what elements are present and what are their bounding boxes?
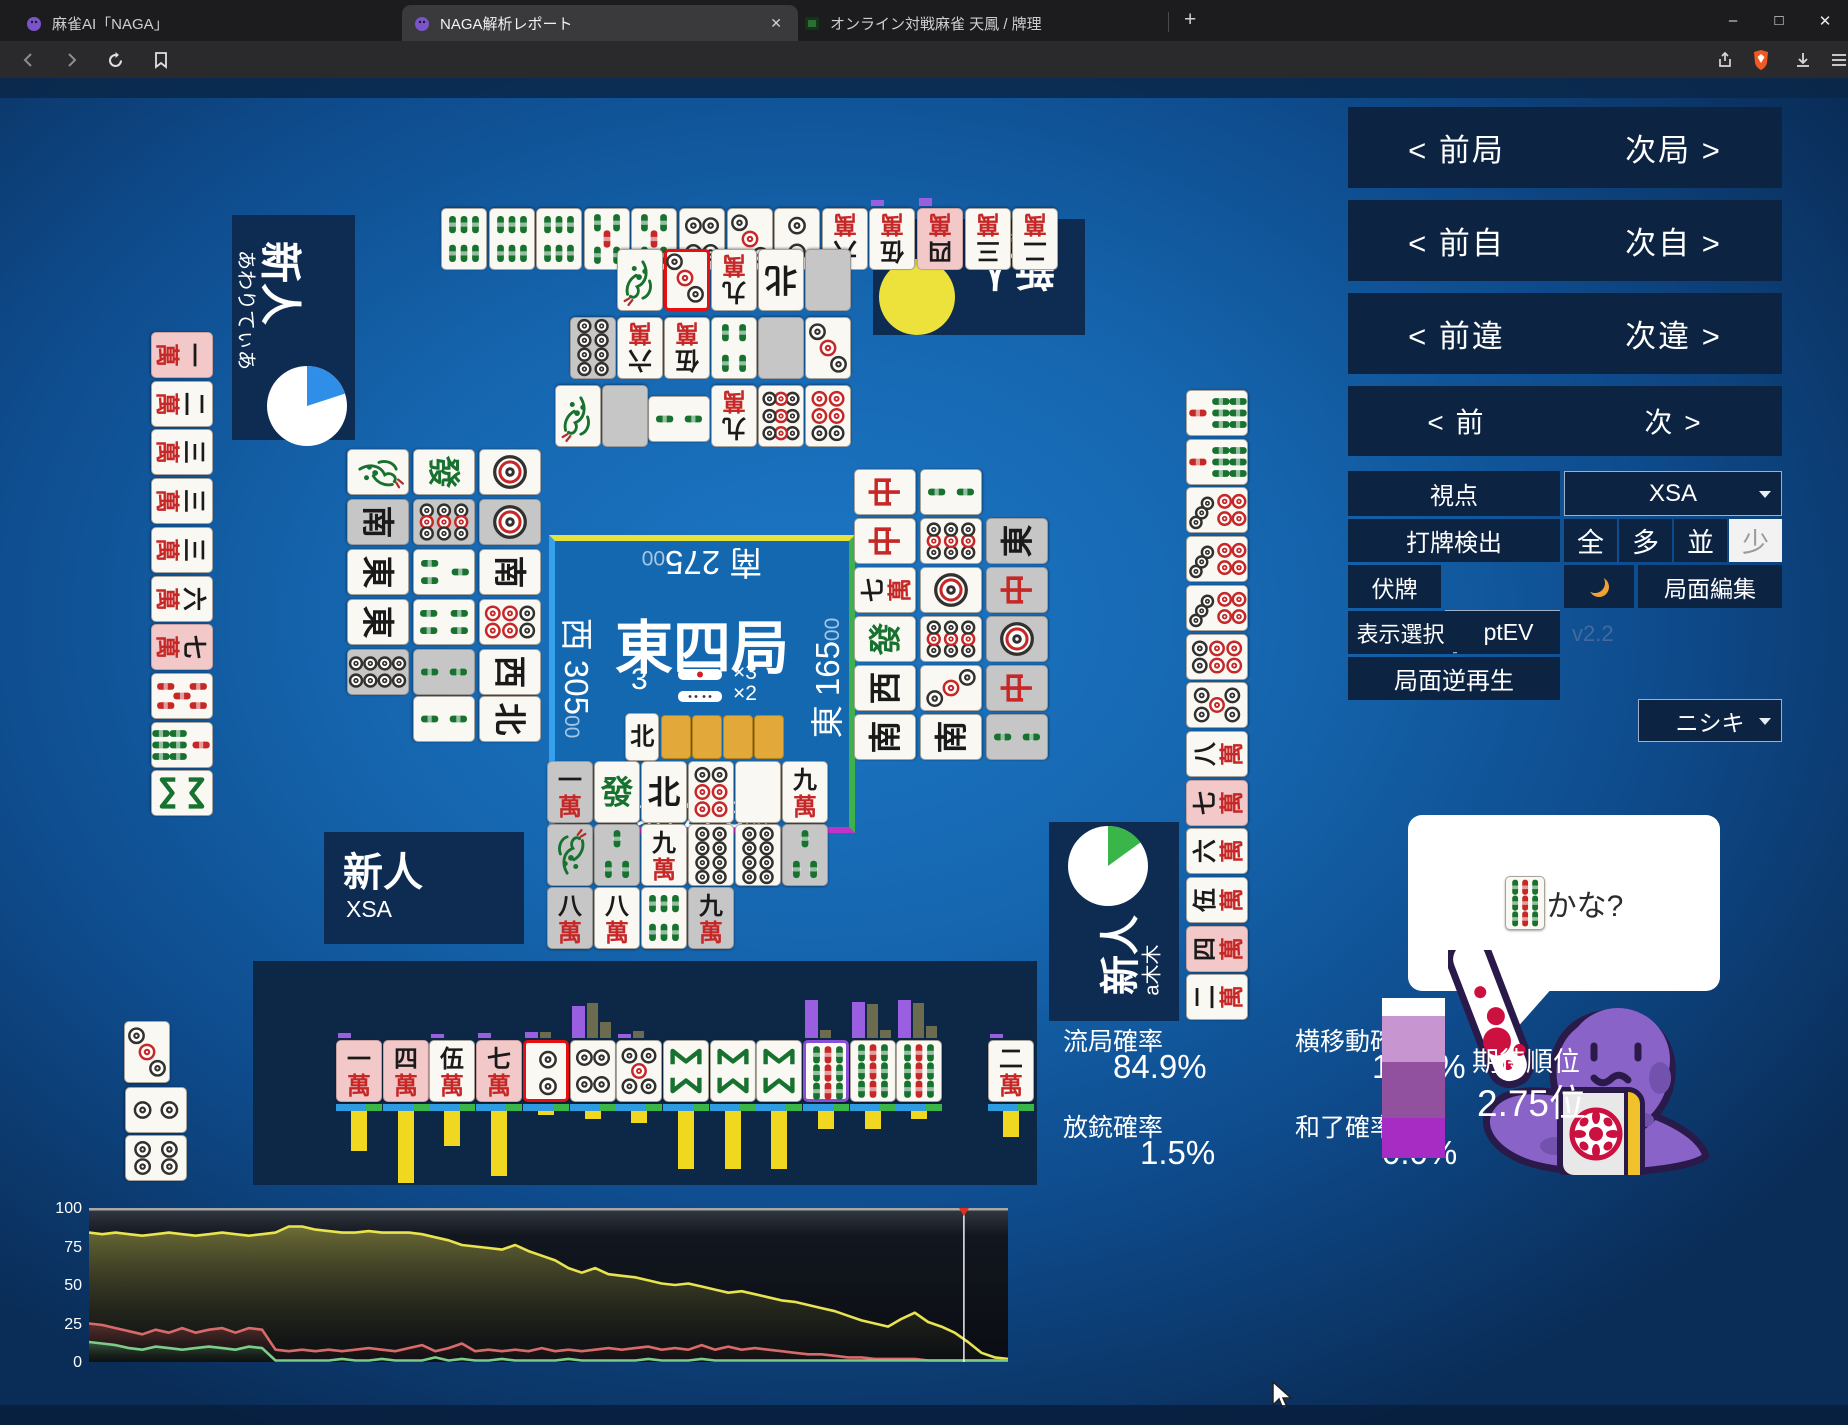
naga-rate-bar: [990, 1034, 1003, 1038]
tile-3m: 三 萬: [151, 429, 213, 475]
other-ai-rate-bar: [926, 1026, 937, 1038]
tile-8s: [151, 770, 213, 816]
agree-strip: [693, 1104, 709, 1111]
tile-9m: 九 萬: [711, 385, 757, 447]
tile-1s: [617, 249, 663, 311]
tile-1s: [347, 449, 409, 495]
tile-2m: 二 萬: [1186, 974, 1248, 1020]
tile-8s: [710, 1040, 756, 1102]
svg-text:萬: 萬: [928, 210, 952, 237]
svg-text:萬: 萬: [1023, 210, 1047, 237]
tile-C: 中: [854, 518, 916, 564]
tile-9s: [850, 1040, 896, 1102]
tile-3s: [594, 824, 640, 886]
tab-title: オンライン対戦麻雀 天鳳 / 牌理: [830, 13, 1042, 34]
naga-rate-bar: [431, 1034, 444, 1038]
svg-text:二: 二: [1023, 237, 1047, 264]
mouse-cursor: [1271, 1381, 1293, 1411]
tile-6s: [441, 208, 487, 270]
svg-text:六: 六: [627, 345, 651, 372]
agree-strip: [336, 1104, 366, 1111]
new-tab-button[interactable]: +: [1184, 8, 1196, 32]
tile-6m: 六 萬: [617, 317, 663, 379]
tile-9s: [1505, 876, 1545, 930]
agree-strip: [366, 1104, 382, 1111]
tile-7m: 七 萬: [1186, 780, 1248, 826]
tile-2s: [413, 696, 475, 742]
svg-text:七: 七: [1192, 791, 1219, 815]
discard-rate-bar: [919, 198, 932, 206]
reload-icon[interactable]: [102, 47, 128, 73]
tile-3s: [782, 824, 828, 886]
tile-H: [735, 761, 781, 823]
other-ai-rate-bar: [587, 1003, 598, 1038]
tile-H: [758, 317, 804, 379]
agree-strip: [896, 1104, 926, 1111]
svg-text:九: 九: [721, 277, 746, 304]
tile-7p: [1186, 487, 1248, 533]
svg-text:萬: 萬: [440, 1073, 464, 1100]
svg-text:伍: 伍: [1191, 888, 1219, 912]
window-minimize-button[interactable]: –: [1710, 0, 1756, 41]
svg-text:八: 八: [1192, 741, 1219, 766]
stat-label-agari: 和了確率: [1295, 1108, 1395, 1144]
y-tick-50: 50: [42, 1277, 82, 1295]
svg-text:二: 二: [999, 1046, 1023, 1073]
svg-text:西: 西: [492, 655, 528, 688]
agree-strip: [616, 1104, 646, 1111]
other-ai-rate-bar: [540, 1032, 551, 1038]
actual-rate-bar: [491, 1111, 507, 1176]
back-icon[interactable]: [16, 47, 42, 73]
tab-tenhou[interactable]: オンライン対戦麻雀 天鳳 / 牌理: [792, 5, 1188, 41]
discard-rate-bar: [871, 200, 884, 206]
svg-text:三: 三: [180, 489, 207, 513]
naga-favicon-icon: [26, 15, 43, 32]
svg-text:三: 三: [976, 237, 1000, 264]
agree-strip: [600, 1104, 616, 1111]
tile-8m: 八 萬: [1186, 731, 1248, 777]
svg-text:北: 北: [764, 261, 797, 297]
svg-text:發: 發: [599, 774, 633, 810]
svg-text:萬: 萬: [153, 635, 180, 659]
tile-5m: 伍 萬: [869, 208, 915, 270]
tile-8p: [347, 649, 409, 695]
tile-5sr: [151, 673, 213, 719]
tile-6s: [536, 208, 582, 270]
svg-text:萬: 萬: [833, 210, 857, 237]
svg-text:伍: 伍: [674, 345, 698, 373]
naga-rate-bar: [525, 1032, 538, 1038]
tile-5p: [616, 1040, 662, 1102]
tile-5m: 伍 萬: [1186, 877, 1248, 923]
other-ai-rate-bar: [820, 1030, 831, 1038]
svg-text:七: 七: [487, 1046, 511, 1073]
agree-strip: [646, 1104, 662, 1111]
tile-9m: 九 萬: [782, 761, 828, 823]
svg-text:萬: 萬: [1219, 791, 1246, 815]
svg-text:萬: 萬: [558, 919, 582, 946]
svg-text:三: 三: [180, 538, 207, 562]
brave-shield-icon[interactable]: [1748, 47, 1774, 73]
tile-2s: [648, 396, 710, 442]
naga-rate-bar: [338, 1033, 351, 1038]
svg-text:六: 六: [1192, 839, 1219, 863]
tile-2p: [523, 1040, 569, 1102]
tab-title: NAGA解析レポート: [440, 13, 573, 34]
tile-9m: 九 萬: [688, 887, 734, 949]
agree-strip: [833, 1104, 849, 1111]
tab-naga-report[interactable]: NAGA解析レポート ✕: [402, 5, 798, 41]
y-tick-25: 25: [42, 1316, 82, 1334]
svg-text:八: 八: [558, 893, 583, 920]
svg-text:七: 七: [180, 635, 207, 659]
agree-strip: [988, 1104, 1018, 1111]
agree-strip: [523, 1104, 553, 1111]
tile-E: 東: [986, 518, 1048, 564]
tile-3s: [413, 549, 475, 595]
rank-probability-bar: [1382, 998, 1445, 1158]
agree-strip: [756, 1104, 786, 1111]
agree-strip: [926, 1104, 942, 1111]
tile-6m: 六 萬: [151, 576, 213, 622]
svg-text:萬: 萬: [1219, 937, 1246, 961]
tab-close-icon[interactable]: ✕: [766, 15, 786, 32]
other-ai-rate-bar: [633, 1031, 644, 1038]
tile-9p: [920, 518, 982, 564]
actual-rate-bar: [865, 1111, 881, 1129]
tile-6m: 六 萬: [1186, 828, 1248, 874]
tile-1m: 一 萬: [336, 1040, 382, 1102]
tile-7s: [151, 722, 213, 768]
svg-text:九: 九: [792, 767, 817, 794]
svg-text:東: 東: [360, 605, 396, 638]
agree-strip: [1018, 1104, 1034, 1111]
tile-7m: 七 萬: [854, 567, 916, 613]
actual-rate-bar: [725, 1111, 741, 1169]
actual-rate-bar: [351, 1111, 367, 1151]
other-ai-rate-bar: [913, 1003, 924, 1038]
tile-9m: 九 萬: [711, 249, 757, 311]
tile-2s: [920, 469, 982, 515]
tile-N: 北: [479, 696, 541, 742]
actual-rate-bar: [398, 1111, 414, 1183]
tile-N: 北: [758, 249, 804, 311]
svg-text:萬: 萬: [1219, 839, 1246, 863]
agree-strip: [740, 1104, 756, 1111]
other-ai-rate-bar: [880, 1030, 891, 1038]
actual-rate-bar: [1003, 1111, 1019, 1137]
tile-1p: [479, 499, 541, 545]
tile-7p: [1186, 585, 1248, 631]
tile-3m: 三 萬: [151, 478, 213, 524]
svg-text:萬: 萬: [487, 1073, 511, 1100]
svg-text:萬: 萬: [628, 319, 652, 346]
tile-3p: [805, 317, 851, 379]
agree-strip: [710, 1104, 740, 1111]
svg-text:東: 東: [360, 555, 396, 588]
naga-rate-bar: [898, 1000, 911, 1038]
svg-text:一: 一: [558, 767, 582, 794]
svg-text:四: 四: [394, 1046, 418, 1073]
naga-analysis-window: 麻雀AI「NAGA」 NAGA解析レポート ✕ オンライン対戦麻雀 天鳳 / 牌…: [0, 0, 1848, 1425]
tile-C: 中: [986, 567, 1048, 613]
tile-E: 東: [347, 549, 409, 595]
naga-rate-bar: [572, 1006, 585, 1038]
tile-7s: [1186, 390, 1248, 436]
agree-strip: [663, 1104, 693, 1111]
tile-S: 南: [347, 499, 409, 545]
other-ai-rate-bar: [867, 1004, 878, 1038]
naga-rate-bar: [478, 1033, 491, 1038]
tile-4m: 四 萬: [1186, 926, 1248, 972]
tile-5p: [1186, 682, 1248, 728]
download-icon[interactable]: [1790, 47, 1816, 73]
svg-text:萬: 萬: [558, 793, 582, 820]
tile-6p: [1186, 634, 1248, 680]
tile-9m: 九 萬: [641, 824, 687, 886]
actual-rate-bar: [631, 1111, 647, 1123]
tile-1p: [920, 567, 982, 613]
svg-text:二: 二: [180, 392, 207, 416]
tile-6s: [489, 208, 535, 270]
svg-text:萬: 萬: [722, 387, 746, 414]
tile-F: 發: [413, 449, 475, 495]
stat-value-houjuu: 1.5%: [1140, 1134, 1215, 1172]
svg-text:萬: 萬: [1219, 742, 1246, 766]
tile-S: 南: [854, 714, 916, 760]
analysis-board: < 前局 次局 > < 前自 次自 > < 前違 次違 > < 前 次 > 視点…: [0, 78, 1848, 1425]
tile-1s: [555, 385, 601, 447]
agree-strip: [476, 1104, 506, 1111]
svg-text:一: 一: [180, 343, 207, 367]
tile-9p: [920, 616, 982, 662]
share-icon[interactable]: [1712, 47, 1738, 73]
svg-text:一: 一: [347, 1046, 371, 1073]
agree-strip: [506, 1104, 522, 1111]
tile-9s: [803, 1040, 849, 1102]
naga-rate-bar: [618, 1034, 631, 1038]
tile-4m: 四 萬: [383, 1040, 429, 1102]
tile-8s: [663, 1040, 709, 1102]
tab-title: 麻雀AI「NAGA」: [52, 13, 169, 34]
svg-text:伍: 伍: [880, 237, 904, 265]
svg-text:萬: 萬: [153, 440, 180, 464]
expected-rank-value: 2.75位: [1477, 1073, 1586, 1127]
y-tick-100: 100: [42, 1200, 82, 1218]
window-maximize-button[interactable]: □: [1756, 0, 1802, 41]
agree-strip: [570, 1104, 600, 1111]
svg-text:萬: 萬: [153, 538, 180, 562]
svg-text:萬: 萬: [722, 251, 746, 278]
tile-S: 南: [479, 549, 541, 595]
rank-segment-3: [1382, 1062, 1445, 1118]
tile-8m: 八 萬: [547, 887, 593, 949]
tile-9p: [413, 499, 475, 545]
actual-rate-bar: [678, 1111, 694, 1169]
suggestion-text: かな?: [1547, 881, 1624, 925]
tile-1p: [986, 616, 1048, 662]
svg-text:四: 四: [1192, 937, 1219, 961]
svg-text:中: 中: [999, 573, 1035, 606]
rank-segment-4: [1382, 1118, 1445, 1158]
svg-text:六: 六: [180, 587, 207, 611]
tile-7m: 七 萬: [151, 624, 213, 670]
tile-8s: [756, 1040, 802, 1102]
tile-6p: [688, 761, 734, 823]
svg-text:中: 中: [867, 524, 903, 557]
actual-rate-bar: [585, 1111, 601, 1119]
tile-4s: [711, 317, 757, 379]
svg-text:發: 發: [426, 454, 462, 488]
tile-F: 發: [854, 616, 916, 662]
svg-text:萬: 萬: [880, 210, 904, 237]
tile-1p: [479, 449, 541, 495]
svg-text:二: 二: [1192, 985, 1219, 1009]
svg-text:南: 南: [867, 720, 903, 753]
tile-2m: 二 萬: [1012, 208, 1058, 270]
tile-6s: [641, 887, 687, 949]
agree-strip: [786, 1104, 802, 1111]
tile-3m: 三 萬: [151, 527, 213, 573]
browser-tab-bar: 麻雀AI「NAGA」 NAGA解析レポート ✕ オンライン対戦麻雀 天鳳 / 牌…: [0, 0, 1848, 41]
tile-3m: 三 萬: [965, 208, 1011, 270]
tile-3p: [664, 249, 710, 311]
svg-text:東: 東: [999, 524, 1035, 557]
rank-segment-1: [1382, 998, 1445, 1016]
y-tick-75: 75: [42, 1239, 82, 1257]
svg-text:萬: 萬: [1219, 888, 1246, 912]
svg-text:萬: 萬: [675, 319, 699, 346]
tile-7m: 七 萬: [476, 1040, 522, 1102]
tile-7s: [1186, 439, 1248, 485]
agree-strip: [880, 1104, 896, 1111]
svg-text:九: 九: [698, 893, 723, 920]
tile-6p: [479, 599, 541, 645]
tenhou-favicon-icon: [804, 15, 821, 32]
svg-text:萬: 萬: [699, 919, 723, 946]
win-probability-chart: [89, 1208, 1008, 1362]
tile-2p: [125, 1087, 187, 1133]
tile-6p: [805, 385, 851, 447]
menu-icon[interactable]: [1826, 47, 1848, 73]
svg-text:發: 發: [867, 622, 903, 656]
stat-value-ryukyoku: 84.9%: [1113, 1048, 1207, 1086]
svg-text:南: 南: [360, 505, 396, 538]
actual-rate-bar: [818, 1111, 834, 1129]
tile-9s: [896, 1040, 942, 1102]
actual-rate-bar: [538, 1111, 554, 1115]
tile-2s: [986, 714, 1048, 760]
tile-4p: [570, 1040, 616, 1102]
tab-divider: [1168, 12, 1169, 32]
agree-strip: [803, 1104, 833, 1111]
tile-1m: 一 萬: [151, 332, 213, 378]
svg-text:萬: 萬: [652, 856, 676, 883]
tile-9p: [758, 385, 804, 447]
naga-rate-bar: [852, 1002, 865, 1038]
tile-H: [602, 385, 648, 447]
y-tick-0: 0: [42, 1354, 82, 1372]
tile-H: [805, 249, 851, 311]
svg-text:七: 七: [860, 577, 887, 601]
agree-strip: [553, 1104, 569, 1111]
tile-E: 東: [347, 599, 409, 645]
svg-text:萬: 萬: [394, 1073, 418, 1100]
tile-3p: [124, 1021, 170, 1083]
window-close-button[interactable]: ✕: [1802, 0, 1848, 41]
agree-strip: [429, 1104, 459, 1111]
svg-text:九: 九: [651, 830, 676, 857]
svg-text:萬: 萬: [153, 343, 180, 367]
rank-segment-2: [1382, 1016, 1445, 1062]
svg-text:中: 中: [867, 475, 903, 508]
agree-strip: [413, 1104, 429, 1111]
tile-1s: [547, 824, 593, 886]
svg-text:萬: 萬: [605, 919, 629, 946]
agree-strip: [850, 1104, 880, 1111]
tile-3p: [920, 665, 982, 711]
tile-2m: 二 萬: [988, 1040, 1034, 1102]
svg-text:萬: 萬: [347, 1073, 371, 1100]
tile-5m: 伍 萬: [664, 317, 710, 379]
actual-rate-bar: [444, 1111, 460, 1146]
forward-icon[interactable]: [58, 47, 84, 73]
actual-rate-bar: [771, 1111, 787, 1169]
naga-rate-bar: [805, 1000, 818, 1038]
svg-text:西: 西: [867, 671, 903, 704]
tile-4s: [413, 599, 475, 645]
svg-text:北: 北: [647, 774, 680, 810]
suggested-tile: [1505, 876, 1545, 930]
tile-W: 西: [479, 649, 541, 695]
svg-text:萬: 萬: [887, 578, 914, 602]
tile-2s: [413, 649, 475, 695]
tile-5m: 伍 萬: [429, 1040, 475, 1102]
tile-C: 中: [986, 665, 1048, 711]
tile-7p: [1186, 536, 1248, 582]
svg-text:伍: 伍: [440, 1045, 464, 1073]
tab-naga-home[interactable]: 麻雀AI「NAGA」: [14, 5, 268, 41]
tile-N: 北: [641, 761, 687, 823]
other-ai-rate-bar: [600, 1022, 611, 1038]
svg-text:中: 中: [999, 671, 1035, 704]
tile-C: 中: [854, 469, 916, 515]
svg-text:九: 九: [721, 413, 746, 440]
svg-text:萬: 萬: [976, 210, 1000, 237]
svg-text:三: 三: [180, 440, 207, 464]
svg-text:北: 北: [492, 702, 528, 735]
tile-8p: [688, 824, 734, 886]
svg-text:萬: 萬: [153, 392, 180, 416]
actual-rate-bar: [911, 1111, 927, 1119]
tile-W: 西: [854, 665, 916, 711]
naga-favicon-icon: [414, 15, 431, 32]
svg-text:八: 八: [605, 893, 630, 920]
svg-text:南: 南: [933, 720, 969, 753]
tile-8m: 八 萬: [594, 887, 640, 949]
svg-text:萬: 萬: [793, 793, 817, 820]
agree-strip: [459, 1104, 475, 1111]
bookmark-icon[interactable]: [148, 47, 174, 73]
tile-8p: [570, 317, 616, 379]
tile-8p: [735, 824, 781, 886]
svg-text:萬: 萬: [153, 489, 180, 513]
agree-strip: [383, 1104, 413, 1111]
tile-4p: [125, 1135, 187, 1181]
svg-text:四: 四: [928, 237, 952, 264]
browser-toolbar: https://naga.dmv.nico/htmls/ec07d201da31…: [0, 41, 1848, 78]
